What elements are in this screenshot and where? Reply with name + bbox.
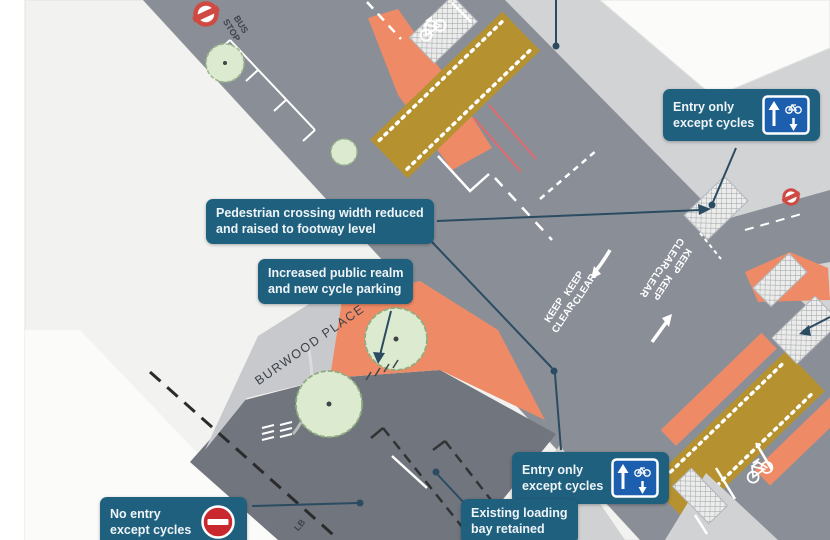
entry-except-cycles-sign-icon	[611, 458, 659, 498]
callout-text: Entry only	[673, 99, 754, 115]
callout-text: Entry only	[522, 462, 603, 478]
entry-except-cycles-sign-icon	[762, 95, 810, 135]
callout-pedestrian-crossing: Pedestrian crossing width reduced and ra…	[206, 199, 434, 244]
no-entry-sign-icon	[199, 503, 237, 540]
callout-text: except cycles	[522, 478, 603, 494]
scanned-street-plan: KEEPKEEP CLEARCLEAR KEEPKEEP CLEARCLEAR …	[0, 0, 830, 540]
callout-no-entry: No entry except cycles	[100, 497, 247, 540]
leader-dot	[709, 202, 716, 209]
callout-text: Increased public realm	[268, 265, 403, 281]
tree	[331, 139, 357, 165]
map-svg: KEEPKEEP CLEARCLEAR KEEPKEEP CLEARCLEAR …	[0, 0, 830, 540]
callout-text: and raised to footway level	[216, 221, 424, 237]
callout-text: and new cycle parking	[268, 281, 403, 297]
callout-public-realm: Increased public realm and new cycle par…	[258, 259, 413, 304]
leader-dot	[551, 368, 558, 375]
callout-text: Existing loading	[471, 505, 568, 521]
leader-dot	[433, 469, 440, 476]
callout-text: except cycles	[110, 522, 191, 538]
callout-entry-only-bottom: Entry only except cycles	[512, 452, 669, 504]
callout-text: No entry	[110, 506, 191, 522]
callout-loading-bay: Existing loading bay retained	[461, 499, 578, 540]
page-edge-strip	[0, 0, 26, 540]
leader-dot	[357, 500, 364, 507]
callout-text: except cycles	[673, 115, 754, 131]
callout-text: Pedestrian crossing width reduced	[216, 205, 424, 221]
leader-dot	[553, 43, 560, 50]
callout-text: bay retained	[471, 521, 568, 537]
callout-entry-only-top: Entry only except cycles	[663, 89, 820, 141]
